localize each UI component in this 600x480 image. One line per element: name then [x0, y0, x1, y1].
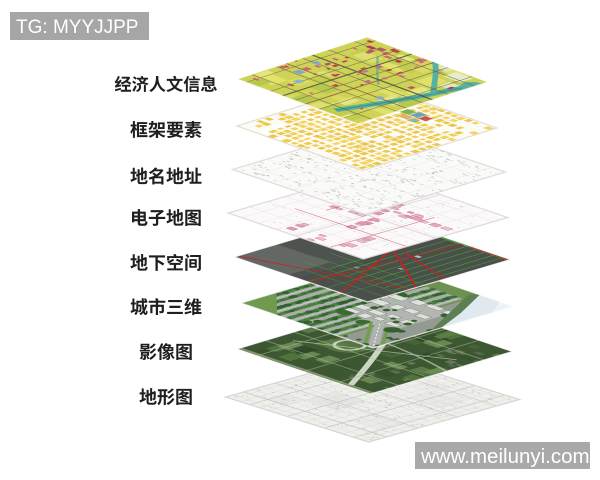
- svg-text:TG: MYYJJPP: TG: MYYJJPP: [16, 17, 138, 38]
- svg-text:www.meilunyi.com: www.meilunyi.com: [420, 445, 590, 468]
